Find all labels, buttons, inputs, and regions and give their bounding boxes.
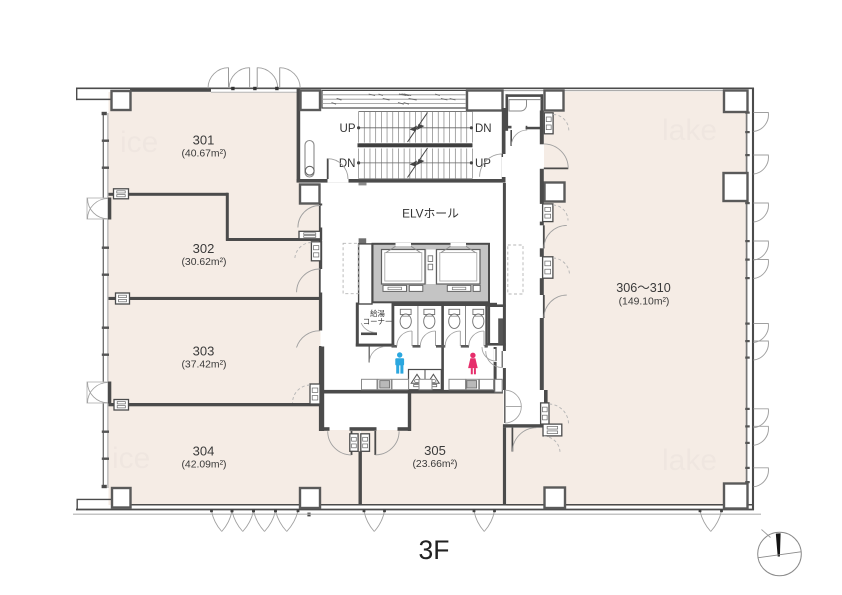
svg-text:(37.42m²): (37.42m²) bbox=[181, 359, 226, 370]
svg-text:(42.09m²): (42.09m²) bbox=[181, 459, 226, 470]
svg-text:DN: DN bbox=[475, 123, 492, 135]
svg-text:lake: lake bbox=[662, 114, 717, 147]
svg-text:(30.62m²): (30.62m²) bbox=[181, 257, 226, 268]
svg-text:301: 301 bbox=[193, 133, 215, 148]
svg-text:3F: 3F bbox=[419, 535, 450, 565]
svg-text:ice: ice bbox=[120, 126, 158, 159]
svg-text:306～310: 306～310 bbox=[616, 281, 671, 295]
svg-text:ice: ice bbox=[112, 442, 150, 475]
svg-text:UP: UP bbox=[340, 123, 356, 135]
svg-text:304: 304 bbox=[193, 444, 215, 459]
svg-text:305: 305 bbox=[424, 443, 446, 458]
svg-text:lake: lake bbox=[662, 444, 717, 477]
svg-text:(23.66m²): (23.66m²) bbox=[412, 459, 457, 470]
svg-text:303: 303 bbox=[193, 344, 215, 359]
svg-text:コーナー: コーナー bbox=[363, 317, 393, 326]
svg-text:ELVホール: ELVホール bbox=[402, 206, 459, 220]
svg-text:(149.10m²): (149.10m²) bbox=[619, 296, 670, 307]
svg-text:(40.67m²): (40.67m²) bbox=[181, 149, 226, 160]
svg-text:302: 302 bbox=[193, 241, 215, 256]
